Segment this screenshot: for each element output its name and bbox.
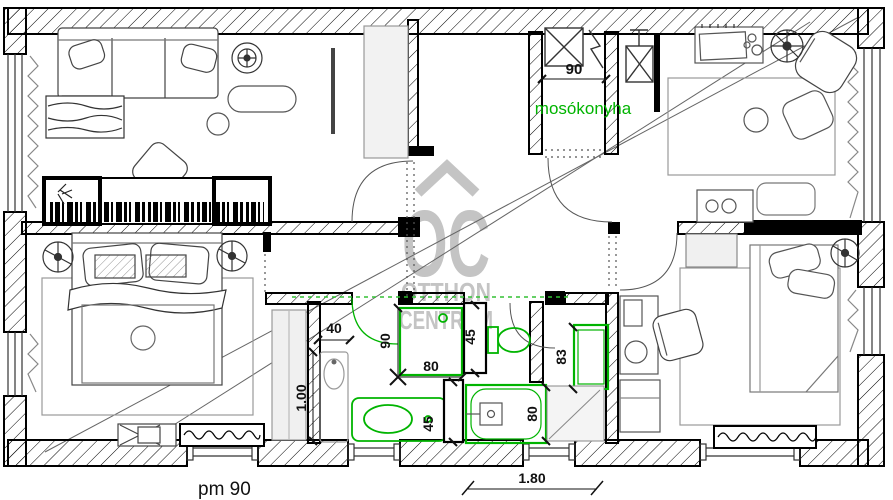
bookshelf: [44, 178, 270, 224]
laptop: [699, 32, 746, 60]
washbasin-83: [574, 325, 608, 389]
vanity-40: [320, 352, 348, 442]
dim-shower-width: 80: [423, 358, 439, 374]
ceiling-fan-living: [232, 43, 262, 73]
laundry-area: [545, 28, 653, 82]
toilet: [488, 327, 530, 353]
living-room-furniture: [44, 26, 408, 224]
dim-bathtub-width: 80: [524, 406, 540, 422]
dim-shower-length: 90: [377, 333, 393, 349]
floor-plan: OC OTTHON CENTRUM: [0, 0, 893, 500]
bed: [750, 242, 838, 392]
parapet-note: pm 90: [198, 479, 251, 500]
ceiling-fan-top-right: [771, 30, 803, 62]
dim-laundry-opening: 90: [566, 61, 583, 78]
dresser: [697, 183, 815, 222]
room-label-laundry: mosókonyha: [535, 99, 632, 118]
wardrobe-hall: [364, 26, 408, 158]
desk: [695, 24, 763, 63]
tv: [331, 48, 335, 134]
chair: [651, 307, 705, 363]
dim-vanity-depth: 40: [326, 320, 342, 336]
dim-cabinet-top: 45: [462, 329, 478, 345]
power-symbol: [589, 30, 603, 68]
desk-chair: [790, 26, 862, 98]
floor-plan-drawing: OC OTTHON CENTRUM: [0, 0, 893, 500]
dim-window-width: 1.80: [518, 470, 545, 486]
bottom-right-room-furniture: [620, 234, 840, 432]
coffee-table: [228, 86, 296, 112]
floor-cushion: [780, 88, 837, 143]
watermark-roof-icon: [418, 166, 476, 193]
wardrobe: [686, 234, 737, 267]
top-right-room-furniture: [668, 24, 862, 222]
pouf: [744, 108, 768, 132]
dim-cabinet-bottom: 45: [420, 416, 436, 432]
blanket: [46, 96, 124, 138]
bed: [68, 233, 226, 385]
dryer: [626, 30, 653, 82]
stool: [207, 113, 229, 135]
dim-washbasin-length: 83: [553, 349, 569, 365]
shower-tray-corner: [547, 386, 604, 441]
dim-vanity-length: 1.00: [293, 384, 309, 411]
dresser-x: [118, 424, 176, 446]
bedroom-left-furniture: [42, 233, 306, 446]
desk: [620, 296, 660, 432]
